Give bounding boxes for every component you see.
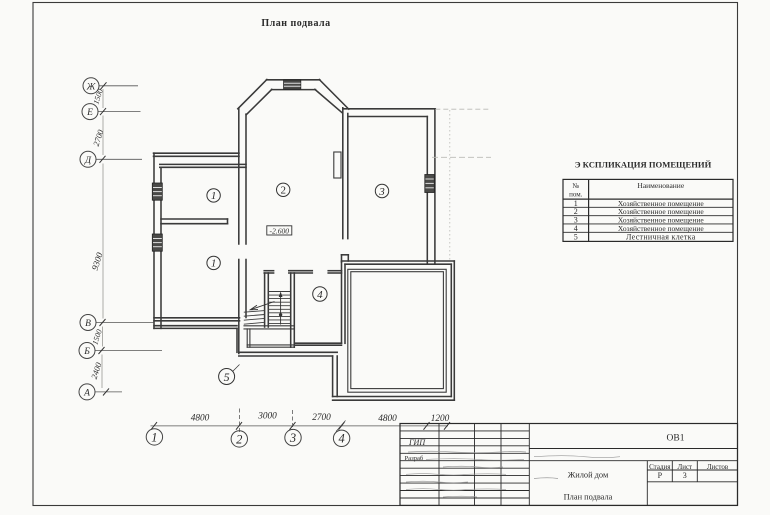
svg-text:Лестничная клетка: Лестничная клетка bbox=[626, 232, 696, 241]
svg-text:А: А bbox=[83, 388, 90, 398]
svg-text:План подвала: План подвала bbox=[261, 18, 330, 29]
svg-text:4: 4 bbox=[338, 432, 344, 446]
svg-text:План подвала: План подвала bbox=[564, 493, 613, 502]
svg-text:3: 3 bbox=[289, 431, 296, 445]
svg-text:№: № bbox=[572, 182, 579, 190]
svg-text:2: 2 bbox=[236, 432, 242, 446]
svg-text:Разраб: Разраб bbox=[405, 455, 424, 462]
svg-text:3000: 3000 bbox=[257, 411, 277, 421]
svg-text:Е: Е bbox=[86, 108, 93, 118]
svg-text:Р: Р bbox=[658, 471, 663, 480]
svg-text:ГИП: ГИП bbox=[408, 438, 426, 447]
svg-text:Э КСПЛИКАЦИЯ ПОМЕЩЕНИЙ: Э КСПЛИКАЦИЯ ПОМЕЩЕНИЙ bbox=[575, 160, 712, 170]
svg-text:2700: 2700 bbox=[312, 413, 331, 423]
svg-text:В: В bbox=[85, 319, 91, 329]
svg-text:3: 3 bbox=[378, 186, 385, 198]
svg-text:ОВ1: ОВ1 bbox=[667, 433, 685, 443]
svg-text:1: 1 bbox=[211, 258, 217, 270]
svg-text:Жилой дом: Жилой дом bbox=[568, 471, 609, 480]
svg-text:1200: 1200 bbox=[431, 414, 450, 424]
svg-text:4800: 4800 bbox=[191, 413, 210, 423]
svg-text:1: 1 bbox=[211, 190, 217, 202]
svg-text:Д: Д bbox=[84, 156, 92, 166]
svg-text:2: 2 bbox=[280, 185, 286, 197]
svg-text:4: 4 bbox=[317, 289, 323, 301]
svg-text:5: 5 bbox=[574, 232, 578, 241]
svg-text:Наименование: Наименование bbox=[637, 181, 684, 190]
svg-text:5: 5 bbox=[224, 370, 230, 384]
svg-text:1: 1 bbox=[151, 430, 157, 444]
svg-text:Стадия: Стадия bbox=[649, 463, 671, 471]
svg-text:Лист: Лист bbox=[677, 463, 692, 471]
svg-text:пом.: пом. bbox=[569, 191, 583, 199]
svg-text:Листов: Листов bbox=[707, 463, 729, 471]
svg-text:Б: Б bbox=[83, 347, 90, 357]
svg-text:3: 3 bbox=[683, 471, 687, 480]
svg-text:4800: 4800 bbox=[378, 414, 397, 424]
svg-text:-2.600: -2.600 bbox=[269, 226, 289, 235]
